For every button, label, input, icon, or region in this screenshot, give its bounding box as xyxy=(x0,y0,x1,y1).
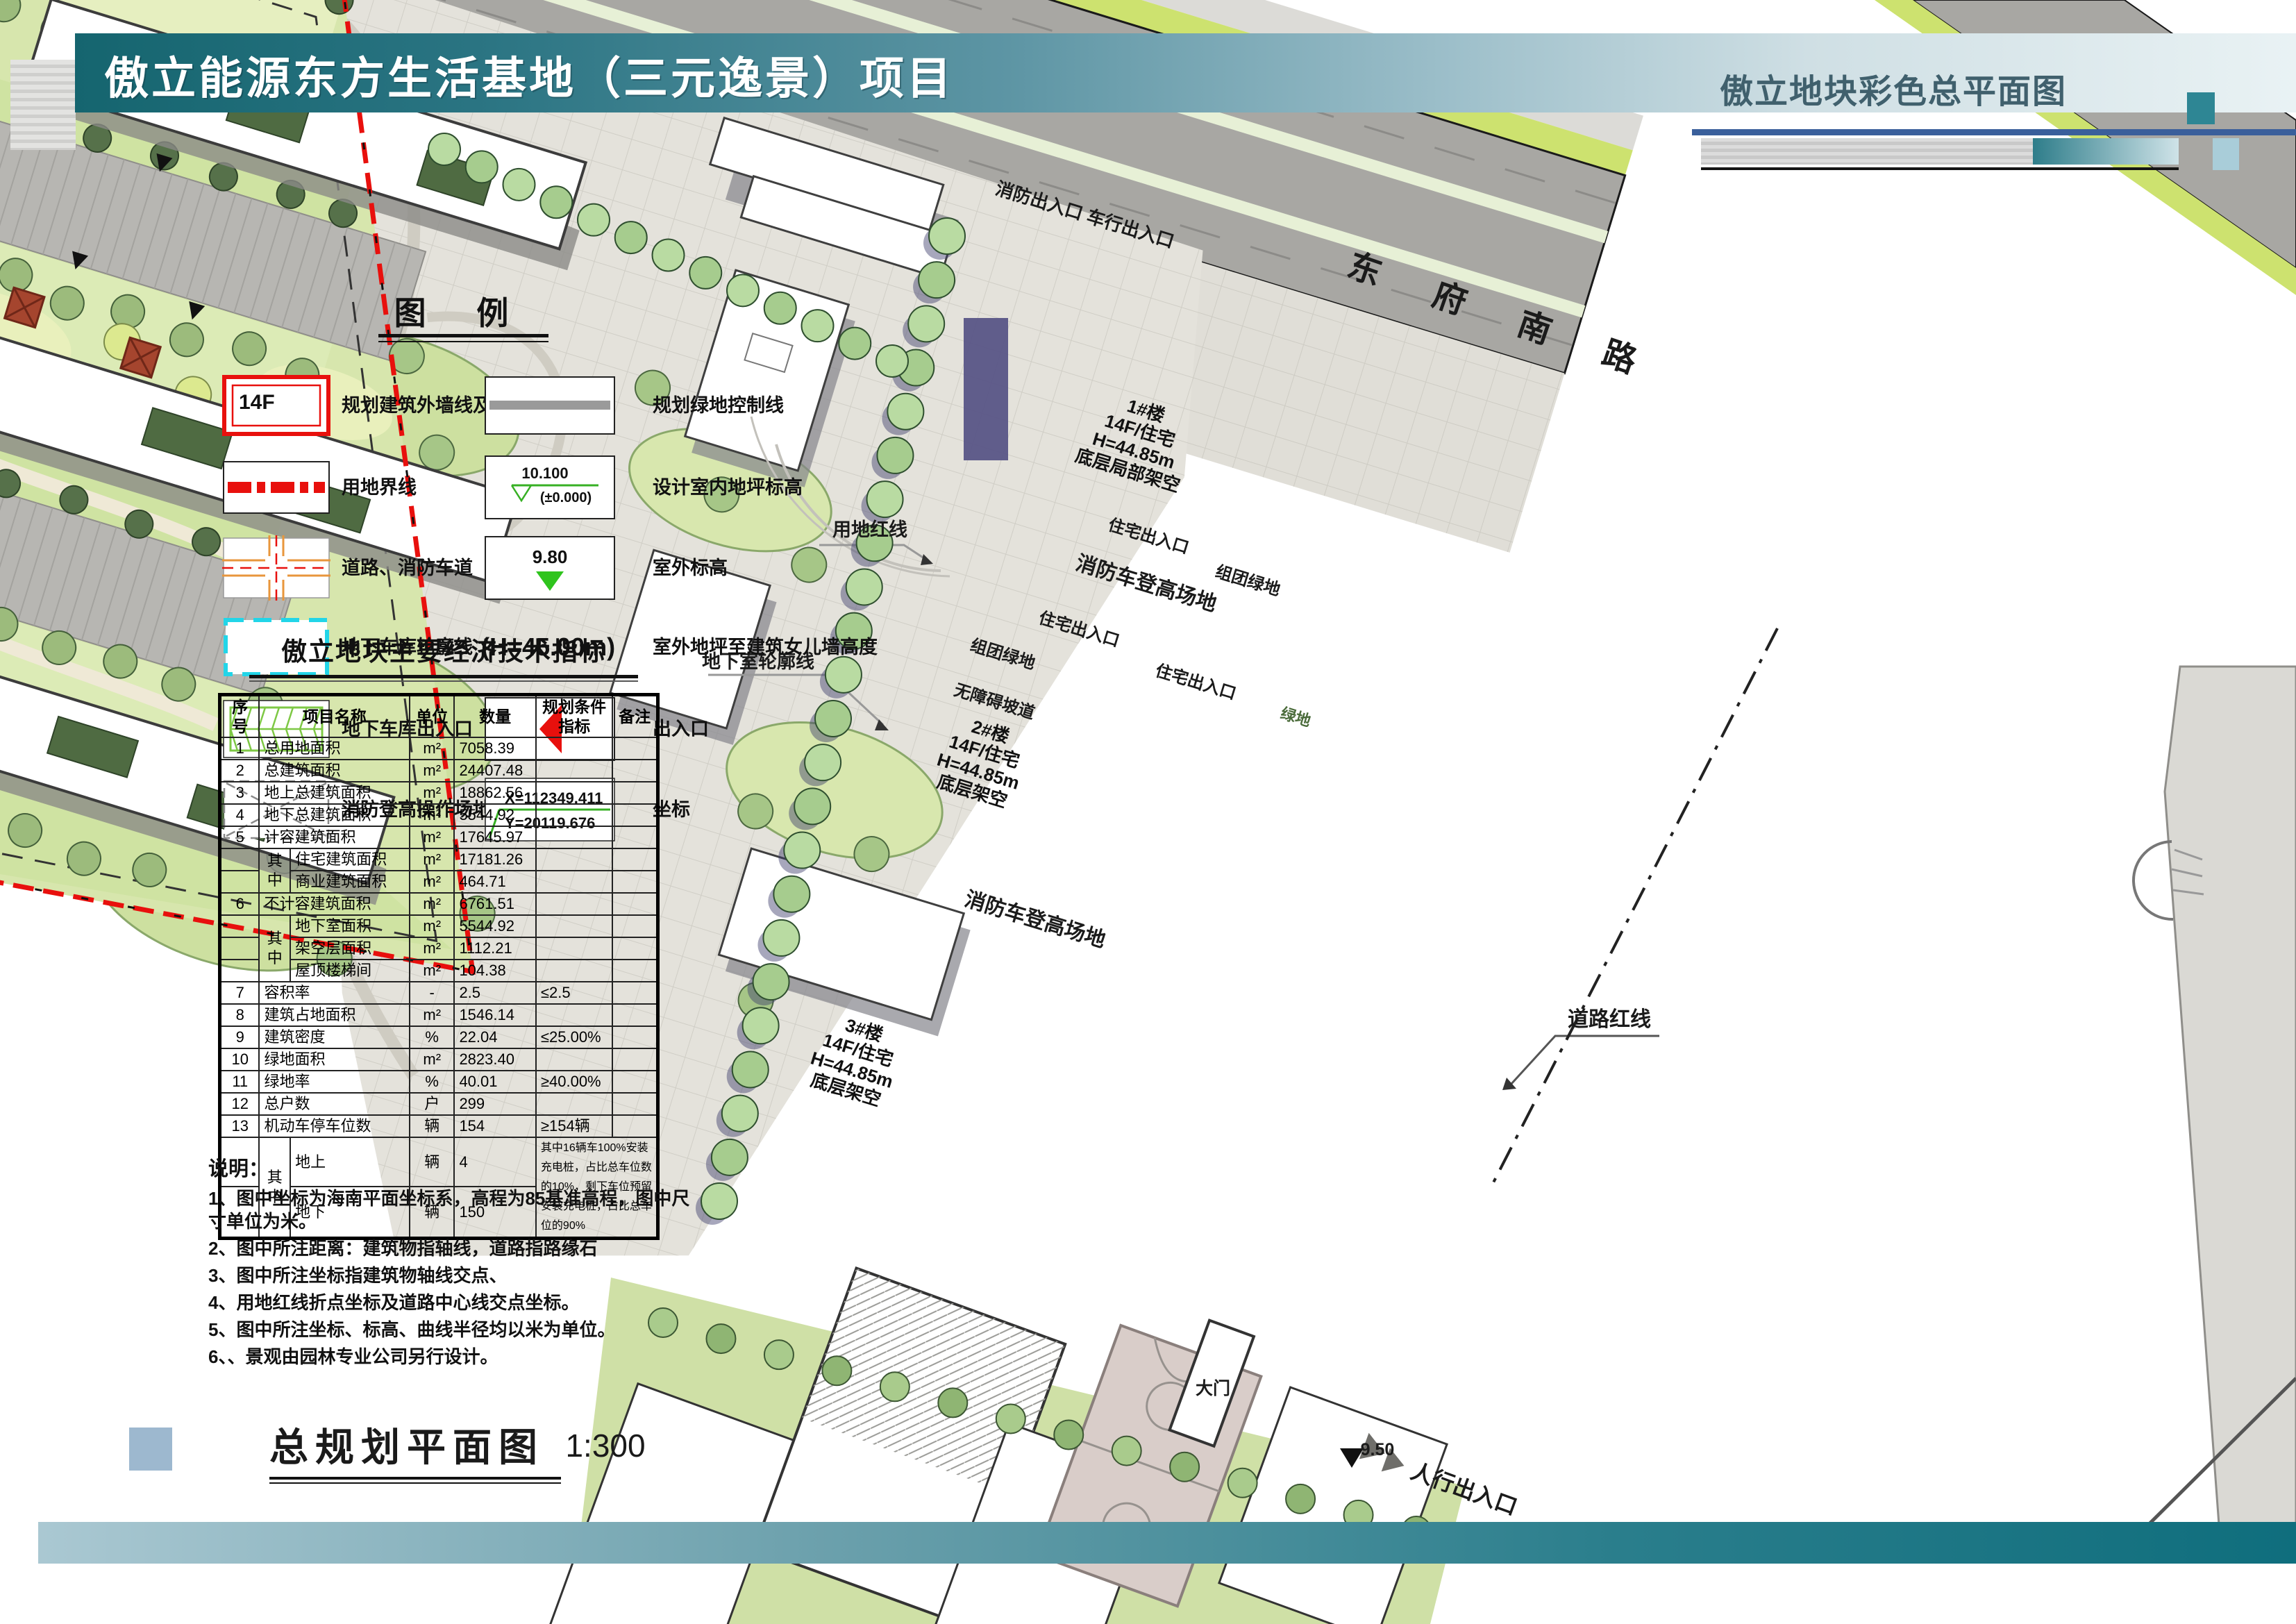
table-cell: m² xyxy=(410,937,454,960)
table-cell: 地上总建筑面积 xyxy=(259,782,410,804)
table-cell xyxy=(536,826,612,848)
legend-label: 规划绿地控制线 xyxy=(653,373,784,438)
tree-icon xyxy=(908,305,944,342)
table-header-row: 序号项目名称单位数量规划条件 指标备注 xyxy=(220,695,658,738)
table-cell: 其中 xyxy=(259,848,290,893)
tree-icon xyxy=(743,1007,779,1044)
table-title: 傲立地块主要经济技术指标 xyxy=(218,630,669,668)
tree-icon xyxy=(1112,1437,1141,1466)
table-row: 8建筑占地面积m²1546.14 xyxy=(220,1004,658,1026)
table-cell xyxy=(612,915,657,937)
tree-icon xyxy=(929,218,965,254)
drawing-title: 傲立地块彩色总平面图 xyxy=(1720,64,2067,112)
footer-bar xyxy=(38,1522,2296,1564)
table-cell xyxy=(220,937,260,960)
east-edge-road xyxy=(2111,667,2296,1562)
table-cell xyxy=(536,1093,612,1115)
table-cell: 10 xyxy=(220,1048,260,1071)
note-item: 5、图中所注坐标、标高、曲线半径均以米为单位。 xyxy=(208,1319,694,1341)
tree-icon xyxy=(938,1388,967,1417)
tree-icon xyxy=(712,1139,748,1175)
table-row: 3地上总建筑面积m²18862.56 xyxy=(220,782,658,804)
table-cell: 总户数 xyxy=(259,1093,410,1115)
table-cell: 户 xyxy=(410,1093,454,1115)
table-cell: 299 xyxy=(454,1093,535,1115)
svg-text:10.100: 10.100 xyxy=(521,464,568,482)
plan-label: 大门 xyxy=(1196,1378,1230,1398)
tree-icon xyxy=(653,240,685,271)
table-row: 12总户数户299 xyxy=(220,1093,658,1115)
table-row: 7容积率-2.5≤2.5 xyxy=(220,982,658,1004)
table-cell: 建筑占地面积 xyxy=(259,1004,410,1026)
table-cell: 13 xyxy=(220,1115,260,1137)
plan-title-underline xyxy=(269,1477,561,1480)
table-header: 单位 xyxy=(410,695,454,738)
tree-icon xyxy=(706,1324,735,1353)
table-cell: 地下总建筑面积 xyxy=(259,804,410,826)
tree-icon xyxy=(822,1356,851,1385)
legend-item-site-boundary xyxy=(222,455,330,524)
table-cell xyxy=(612,826,657,848)
table-cell xyxy=(612,1026,657,1048)
table-cell xyxy=(612,1115,657,1137)
table-row: 其中住宅建筑面积m²17181.26 xyxy=(220,848,658,871)
legend-title: 图 例 xyxy=(358,288,566,334)
table-cell: m² xyxy=(410,960,454,982)
table-cell xyxy=(612,871,657,893)
plan-label: 绿地 xyxy=(1278,704,1312,730)
sheet: 东 府 南 路消防出入口 车行出入口用地红线地下室轮廓线道路红线消防车登高场地消… xyxy=(0,0,2296,1624)
plan-label: 组团绿地 xyxy=(1213,562,1282,600)
table-cell: 6 xyxy=(220,893,260,915)
table-cell: % xyxy=(410,1026,454,1048)
table-cell: m² xyxy=(410,737,454,760)
table-cell xyxy=(612,1071,657,1093)
tree-icon xyxy=(1170,1453,1199,1482)
table-cell: 3 xyxy=(220,782,260,804)
svg-text:(±0.000): (±0.000) xyxy=(540,490,592,505)
table-cell xyxy=(220,871,260,893)
tree-icon xyxy=(428,133,460,165)
table-cell: m² xyxy=(410,893,454,915)
table-cell: 2 xyxy=(220,760,260,782)
table-cell: 7 xyxy=(220,982,260,1004)
table-cell: m² xyxy=(410,848,454,871)
plan-label: 道路红线 xyxy=(1568,1008,1651,1031)
table-cell: 1 xyxy=(220,737,260,760)
table-cell: m² xyxy=(410,826,454,848)
table-cell: 屋顶楼梯间 xyxy=(290,960,410,982)
table-header: 规划条件 指标 xyxy=(536,695,612,738)
table-cell xyxy=(612,982,657,1004)
table-cell: 24407.48 xyxy=(454,760,535,782)
tree-icon xyxy=(887,394,923,430)
table-header: 数量 xyxy=(454,695,535,738)
tree-icon xyxy=(753,964,789,1000)
table-cell: 7058.39 xyxy=(454,737,535,760)
table-cell: 1546.14 xyxy=(454,1004,535,1026)
legend-item-green-line xyxy=(484,373,616,442)
table-cell: 2823.40 xyxy=(454,1048,535,1071)
tree-icon xyxy=(876,345,908,377)
table-cell: 6761.51 xyxy=(454,893,535,915)
tree-icon xyxy=(996,1404,1025,1433)
tree-icon xyxy=(701,1183,737,1219)
table-cell xyxy=(612,1093,657,1115)
header-stripe-decoration xyxy=(1701,138,2033,165)
tree-icon xyxy=(919,262,955,298)
table-cell: 总用地面积 xyxy=(259,737,410,760)
table-cell xyxy=(612,760,657,782)
legend-label: 用地界线 xyxy=(342,455,417,520)
note-item: 4、用地红线折点坐标及道路中心线交点坐标。 xyxy=(208,1291,694,1314)
table-cell: m² xyxy=(410,1004,454,1026)
table-header: 项目名称 xyxy=(259,695,410,738)
outdoor-level-icon: 9.80 xyxy=(484,535,616,601)
table-cell xyxy=(220,848,260,871)
svg-text:14F: 14F xyxy=(239,391,275,414)
table-cell: ≤2.5 xyxy=(536,982,612,1004)
table-cell xyxy=(612,782,657,804)
table-cell: 17181.26 xyxy=(454,848,535,871)
table-cell xyxy=(536,915,612,937)
plan-label: 消防车登高场地 xyxy=(962,887,1109,952)
tree-icon xyxy=(1228,1468,1257,1498)
table-cell: 9 xyxy=(220,1026,260,1048)
table-cell: 5 xyxy=(220,826,260,848)
footer-square-decoration xyxy=(129,1428,172,1471)
table-cell: 商业建筑面积 xyxy=(290,871,410,893)
table-cell xyxy=(220,915,260,937)
table-cell xyxy=(612,893,657,915)
table-cell: 计容建筑面积 xyxy=(259,826,410,848)
table-cell: - xyxy=(410,982,454,1004)
table-row: 6不计容建筑面积m²6761.51 xyxy=(220,893,658,915)
table-row: 其中地下室面积m²5544.92 xyxy=(220,915,658,937)
table-row: 2总建筑面积m²24407.48 xyxy=(220,760,658,782)
table-cell: m² xyxy=(410,804,454,826)
table-cell xyxy=(536,760,612,782)
table-cell: 容积率 xyxy=(259,982,410,1004)
table-cell xyxy=(612,848,657,871)
table-header: 备注 xyxy=(612,695,657,738)
table-cell: 104.38 xyxy=(454,960,535,982)
table-cell: m² xyxy=(410,760,454,782)
indoor-level-icon: 10.100 (±0.000) xyxy=(484,455,616,520)
table-cell: 12 xyxy=(220,1093,260,1115)
header-left-decoration xyxy=(10,60,76,150)
table-cell xyxy=(536,848,612,871)
legend-underline xyxy=(378,334,548,337)
table-cell xyxy=(612,804,657,826)
plan-title-underline-2 xyxy=(269,1482,561,1484)
table-cell xyxy=(536,960,612,982)
tree-icon xyxy=(540,186,572,218)
tree-icon xyxy=(867,481,903,517)
legend-label: 设计室内地坪标高 xyxy=(653,455,803,520)
table-cell: 辆 xyxy=(410,1115,454,1137)
tree-icon xyxy=(1054,1421,1083,1450)
table-cell: m² xyxy=(410,915,454,937)
header-blackline xyxy=(1701,167,2179,170)
plan-title-block: 总规划平面图 1:300 xyxy=(269,1416,646,1484)
table-cell xyxy=(536,782,612,804)
table-cell xyxy=(536,871,612,893)
note-item: 3、图中所注坐标指建筑物轴线交点、 xyxy=(208,1264,694,1287)
table-title-underline xyxy=(249,675,638,678)
table-cell: 5544.92 xyxy=(454,804,535,826)
table-cell: 绿地率 xyxy=(259,1071,410,1093)
table-cell: 17645.97 xyxy=(454,826,535,848)
legend-underline-2 xyxy=(378,341,548,342)
economic-indicator-panel: 傲立地块主要经济技术指标 序号项目名称单位数量规划条件 指标备注1总用地面积m²… xyxy=(218,630,669,1240)
table-row: 11绿地率%40.01≥40.00% xyxy=(220,1071,658,1093)
table-cell: ≥154辆 xyxy=(536,1115,612,1137)
table-cell xyxy=(536,737,612,760)
table-cell: 5544.92 xyxy=(454,915,535,937)
tree-icon xyxy=(503,169,535,201)
note-item: 6、、景观由园林专业公司另行设计。 xyxy=(208,1346,694,1368)
table-cell: 其中 xyxy=(259,915,290,982)
table-cell xyxy=(536,937,612,960)
table-cell xyxy=(536,1004,612,1026)
table-row: 1总用地面积m²7058.39 xyxy=(220,737,658,760)
tree-icon xyxy=(732,1051,769,1087)
tree-icon xyxy=(689,257,721,289)
legend-item-road xyxy=(222,535,330,604)
road-fire-lane-icon xyxy=(222,535,330,601)
table-cell: 464.71 xyxy=(454,871,535,893)
table-row: 4地下总建筑面积m²5544.92 xyxy=(220,804,658,826)
note-item: 1、图中坐标为海南平面坐标系，高程为85基准高程，图中尺寸单位为米。 xyxy=(208,1187,694,1233)
tree-icon xyxy=(615,221,647,253)
table-cell: 绿地面积 xyxy=(259,1048,410,1071)
tree-icon xyxy=(1286,1484,1315,1514)
table-cell: 1112.21 xyxy=(454,937,535,960)
header-teal-square xyxy=(2187,92,2215,124)
table-cell: 40.01 xyxy=(454,1071,535,1093)
plan-scale: 1:300 xyxy=(565,1427,645,1464)
tree-icon xyxy=(773,876,810,912)
table-cell: 机动车停车位数 xyxy=(259,1115,410,1137)
table-cell: 22.04 xyxy=(454,1026,535,1048)
table-cell xyxy=(536,804,612,826)
table-cell xyxy=(220,960,260,982)
table-cell: m² xyxy=(410,1048,454,1071)
table-cell: m² xyxy=(410,871,454,893)
table-header: 序号 xyxy=(220,695,260,738)
svg-text:9.80: 9.80 xyxy=(533,546,568,567)
table-cell: 154 xyxy=(454,1115,535,1137)
table-cell xyxy=(536,1048,612,1071)
header-underline xyxy=(1692,129,2296,135)
table-cell: m² xyxy=(410,782,454,804)
table-cell: 18862.56 xyxy=(454,782,535,804)
table-row: 5计容建筑面积m²17645.97 xyxy=(220,826,658,848)
header-teal-decoration xyxy=(2033,138,2179,165)
table-cell xyxy=(612,1048,657,1071)
site-boundary-icon xyxy=(222,455,330,520)
tree-icon xyxy=(466,151,498,183)
table-cell: 2.5 xyxy=(454,982,535,1004)
legend-label: 道路、消防车道 xyxy=(342,535,473,601)
tree-icon xyxy=(880,1372,910,1401)
garage-ramp-block xyxy=(964,318,1008,460)
table-cell: 11 xyxy=(220,1071,260,1093)
table-cell: 建筑密度 xyxy=(259,1026,410,1048)
table-cell: 总建筑面积 xyxy=(259,760,410,782)
table-cell xyxy=(536,893,612,915)
table-cell xyxy=(612,960,657,982)
table-cell: 架空层面积 xyxy=(290,937,410,960)
tree-icon xyxy=(763,920,799,956)
table-cell: ≤25.00% xyxy=(536,1026,612,1048)
building-outline-icon: 14F xyxy=(222,373,330,438)
table-cell xyxy=(612,937,657,960)
notes-title: 说明： xyxy=(208,1153,694,1182)
plan-label: 9.50 xyxy=(1361,1440,1395,1459)
legend-item-indoor-level: 10.100 (±0.000) xyxy=(484,455,616,524)
header-blue-square xyxy=(2213,138,2239,170)
notes-panel: 说明： 1、图中坐标为海南平面坐标系，高程为85基准高程，图中尺寸单位为米。2、… xyxy=(208,1153,694,1373)
table-cell: 不计容建筑面积 xyxy=(259,893,410,915)
plan-title: 总规划平面图 xyxy=(269,1416,544,1473)
table-row: 13机动车停车位数辆154≥154辆 xyxy=(220,1115,658,1137)
legend-item-building-outline: 14F xyxy=(222,373,330,442)
plan-label: 住宅出入口 xyxy=(1153,660,1239,703)
tree-icon xyxy=(578,204,610,236)
table-cell: % xyxy=(410,1071,454,1093)
table-cell: 地下室面积 xyxy=(290,915,410,937)
table-cell: 住宅建筑面积 xyxy=(290,848,410,871)
legend-item-outdoor-level: 9.80 xyxy=(484,535,616,604)
table-cell: 4 xyxy=(220,804,260,826)
table-title-underline-2 xyxy=(249,680,638,682)
note-item: 2、图中所注距离：建筑物指轴线，道路指路缘石 xyxy=(208,1237,694,1260)
tree-icon xyxy=(877,437,913,474)
table-cell xyxy=(612,1004,657,1026)
table-cell: ≥40.00% xyxy=(536,1071,612,1093)
page-title: 傲立能源东方生活基地（三元逸景）项目 xyxy=(104,43,954,107)
table-cell: 8 xyxy=(220,1004,260,1026)
table-cell xyxy=(612,737,657,760)
green-control-line-icon xyxy=(484,373,616,438)
table-row: 9建筑密度%22.04≤25.00% xyxy=(220,1026,658,1048)
legend-label: 室外地坪至建筑女儿墙高度 xyxy=(653,614,878,680)
table-row: 10绿地面积m²2823.40 xyxy=(220,1048,658,1071)
tree-icon xyxy=(722,1096,758,1132)
legend-label: 室外标高 xyxy=(653,535,728,601)
tree-icon xyxy=(764,1340,794,1369)
